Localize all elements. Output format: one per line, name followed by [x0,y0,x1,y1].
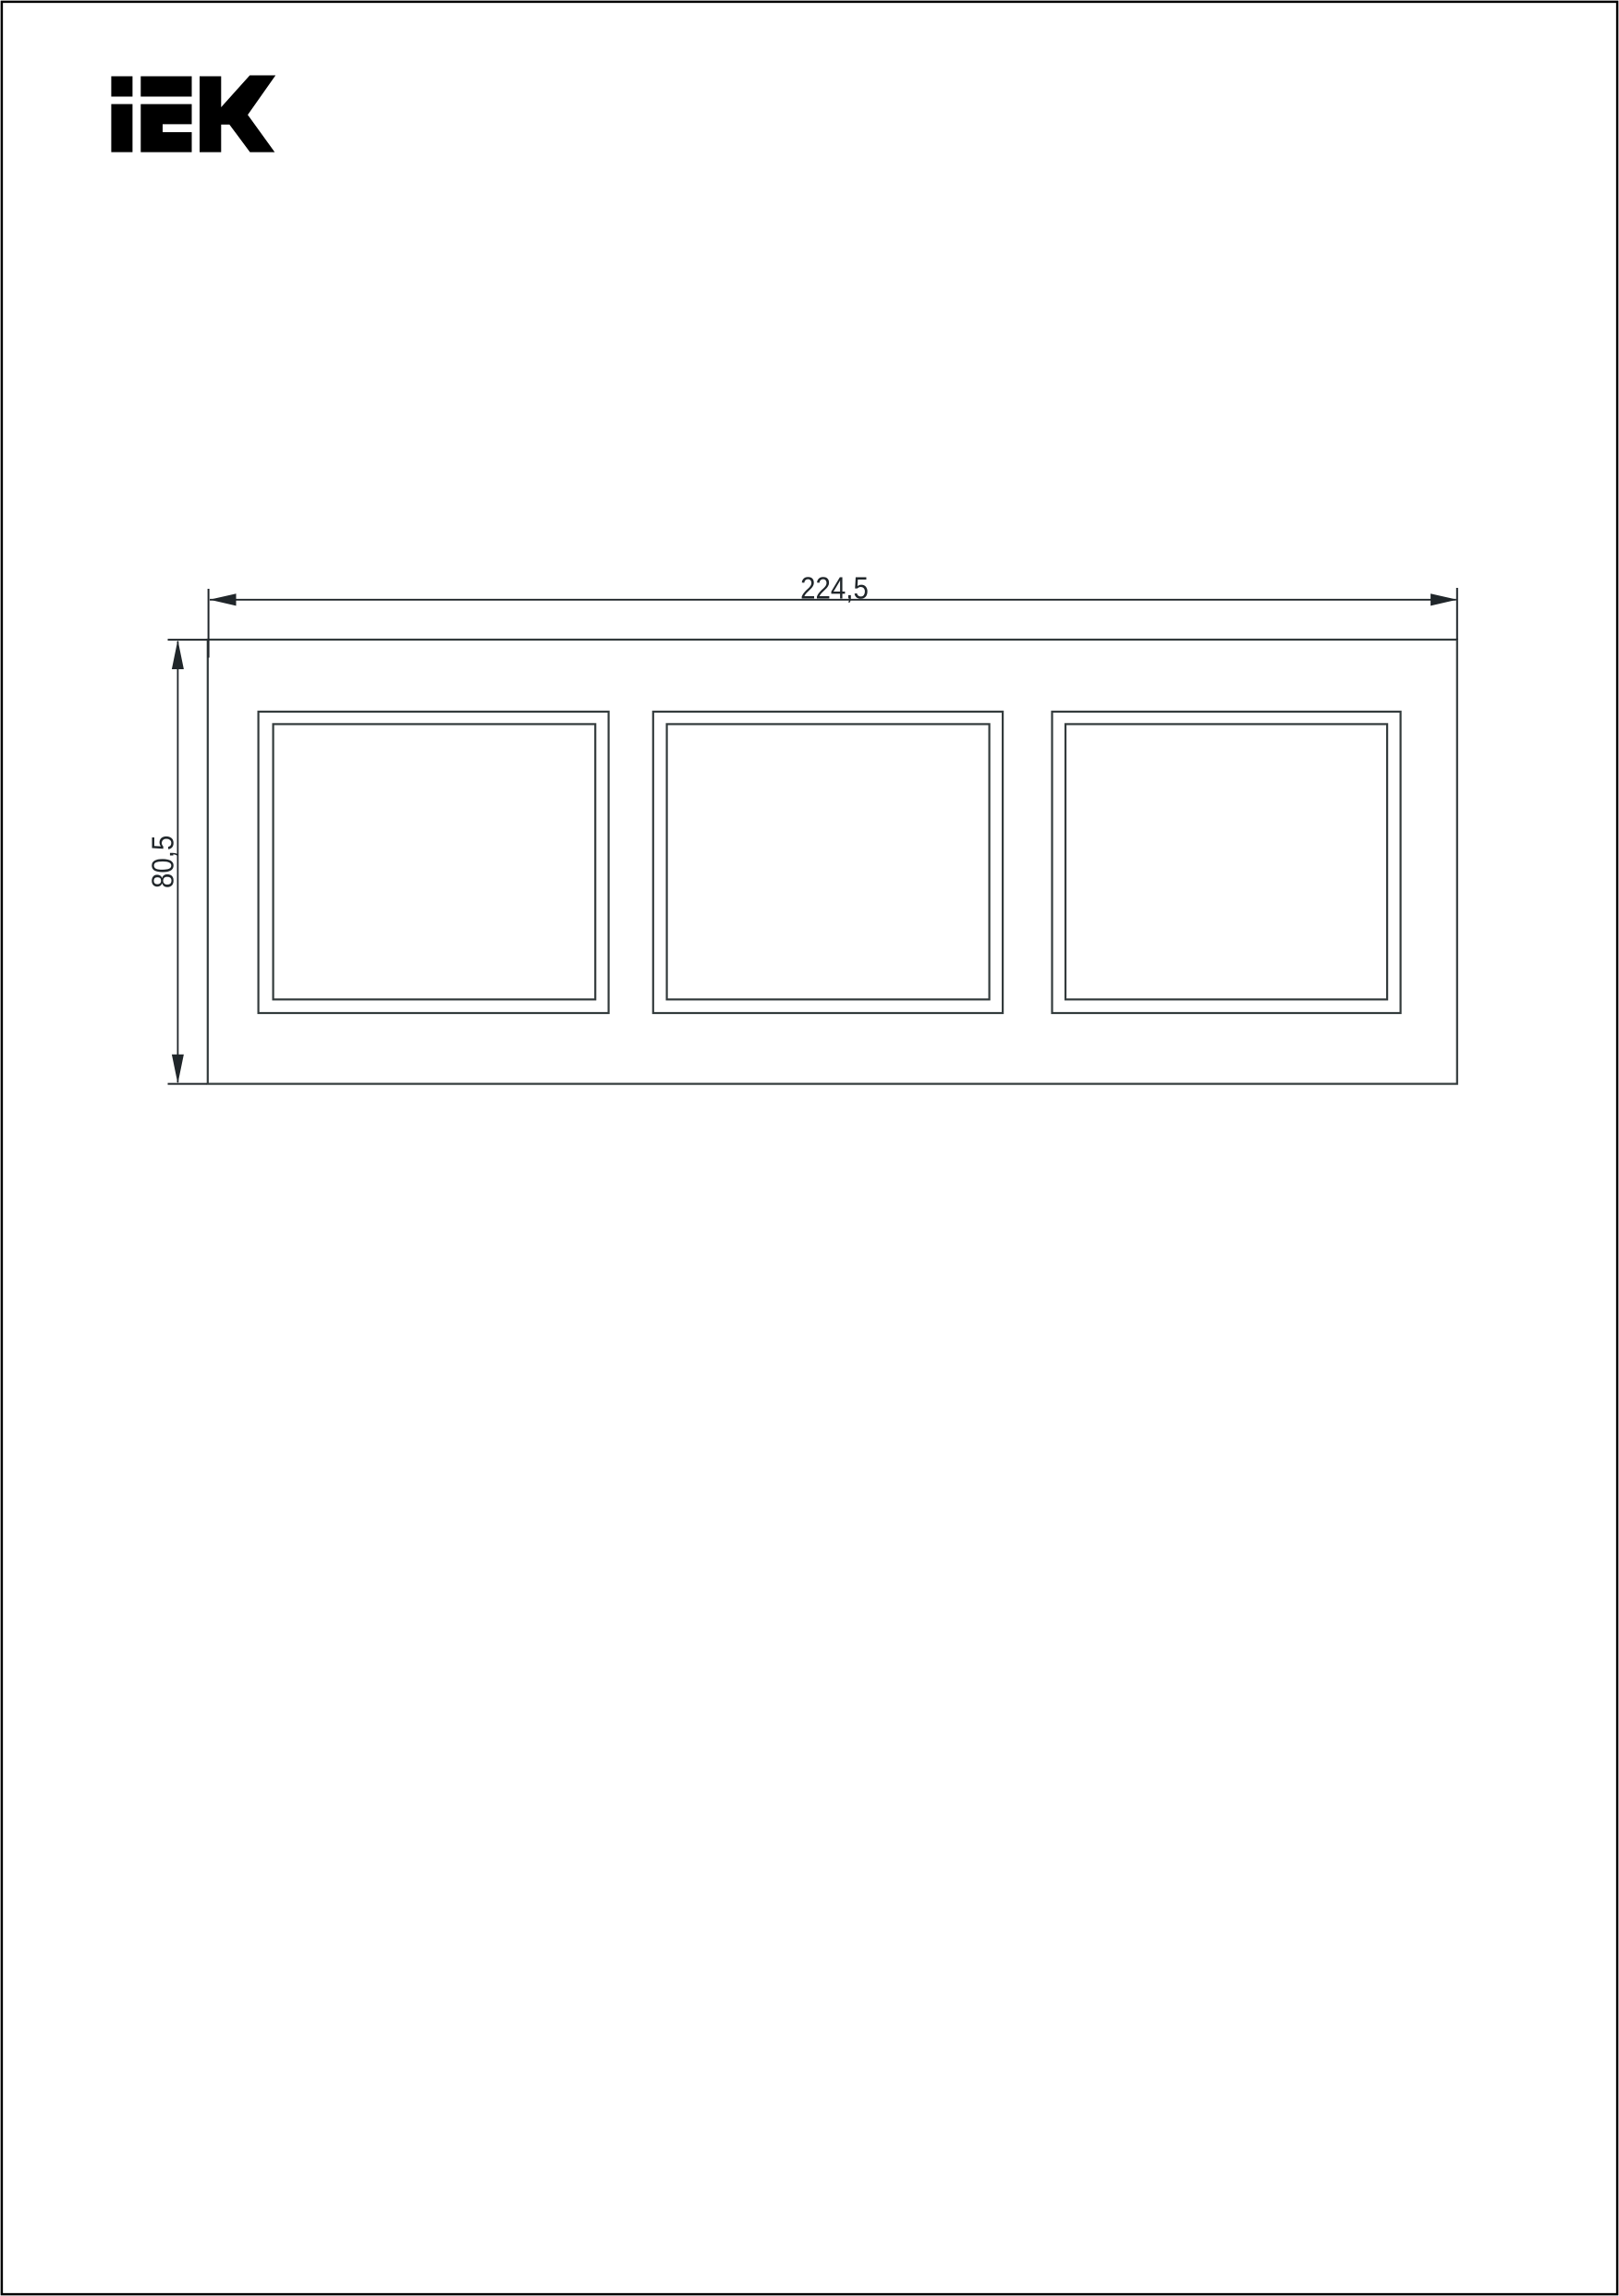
svg-text:224,5: 224,5 [800,570,869,605]
svg-text:80,5: 80,5 [145,836,180,888]
